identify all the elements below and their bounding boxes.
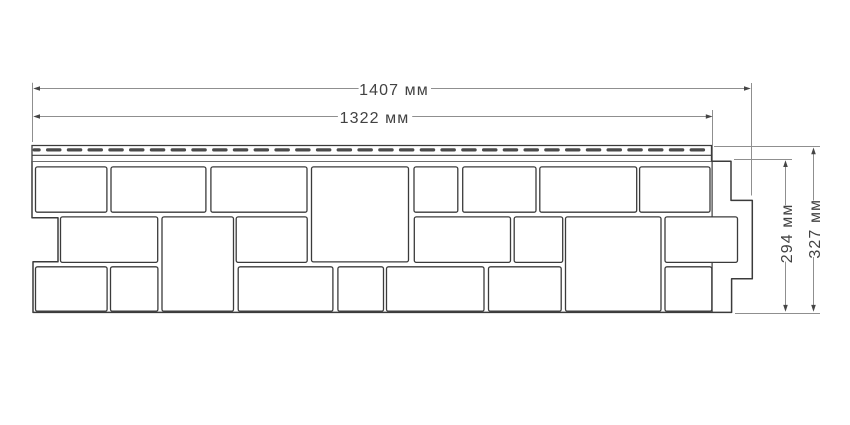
svg-text:327 мм: 327 мм bbox=[807, 199, 824, 259]
svg-text:1407 мм: 1407 мм bbox=[359, 82, 429, 99]
svg-text:1322 мм: 1322 мм bbox=[340, 110, 410, 127]
svg-text:294 мм: 294 мм bbox=[779, 204, 796, 264]
